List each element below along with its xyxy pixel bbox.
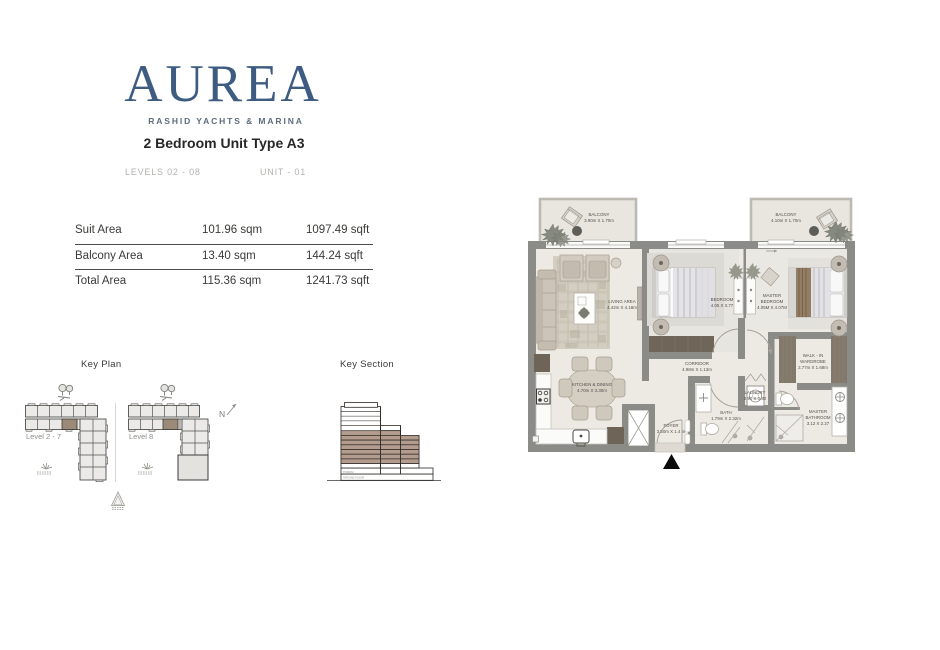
svg-text:4.98m X 1.13m: 4.98m X 1.13m (682, 367, 712, 372)
svg-text:GROUND FLOOR: GROUND FLOOR (343, 476, 364, 480)
svg-text:BATH: BATH (720, 410, 731, 415)
svg-text:BATHROOM: BATHROOM (805, 415, 830, 420)
svg-text:Level 2 - 7: Level 2 - 7 (26, 432, 61, 441)
svg-text:4.70m X 3.30m: 4.70m X 3.30m (577, 388, 607, 393)
svg-text:4.05 X 3.77: 4.05 X 3.77 (711, 303, 734, 308)
svg-text:3.90m X 1.70m: 3.90m X 1.70m (584, 218, 614, 223)
svg-text:LIVING AREA: LIVING AREA (608, 299, 635, 304)
svg-text:4.42m X 4.18m: 4.42m X 4.18m (607, 305, 637, 310)
svg-text:3.50m X 1.4 m: 3.50m X 1.4 m (657, 429, 686, 434)
svg-text:BEDROOM: BEDROOM (761, 299, 784, 304)
svg-text:4.05M X 4.07M: 4.05M X 4.07M (757, 305, 787, 310)
svg-text:MASTER: MASTER (763, 293, 781, 298)
svg-text:BEDROOM: BEDROOM (711, 297, 734, 302)
svg-text:N: N (219, 409, 225, 419)
svg-text:4.10m X 1.70m: 4.10m X 1.70m (771, 218, 801, 223)
svg-text:WARDROBE: WARDROBE (800, 359, 826, 364)
svg-text:WALK - IN: WALK - IN (803, 353, 824, 358)
svg-text:Level 8: Level 8 (129, 432, 153, 441)
svg-text:BALCONY: BALCONY (776, 212, 797, 217)
svg-text:PODIUM: PODIUM (343, 470, 353, 474)
svg-text:BALCONY: BALCONY (589, 212, 610, 217)
svg-text:KITCHEN & DINING: KITCHEN & DINING (572, 382, 613, 387)
svg-text:2.77m X 1.68m: 2.77m X 1.68m (798, 365, 828, 370)
svg-text:LAUNDRY: LAUNDRY (745, 390, 766, 395)
svg-text:CORRIDOR: CORRIDOR (685, 361, 709, 366)
svg-text:3.12 X 2.27: 3.12 X 2.27 (807, 421, 830, 426)
svg-text:1.79m X 2.32m: 1.79m X 2.32m (711, 416, 741, 421)
svg-text:FOYER: FOYER (663, 423, 678, 428)
svg-text:0.90 X 0.80: 0.90 X 0.80 (744, 396, 767, 401)
svg-text:MASTER: MASTER (809, 409, 827, 414)
